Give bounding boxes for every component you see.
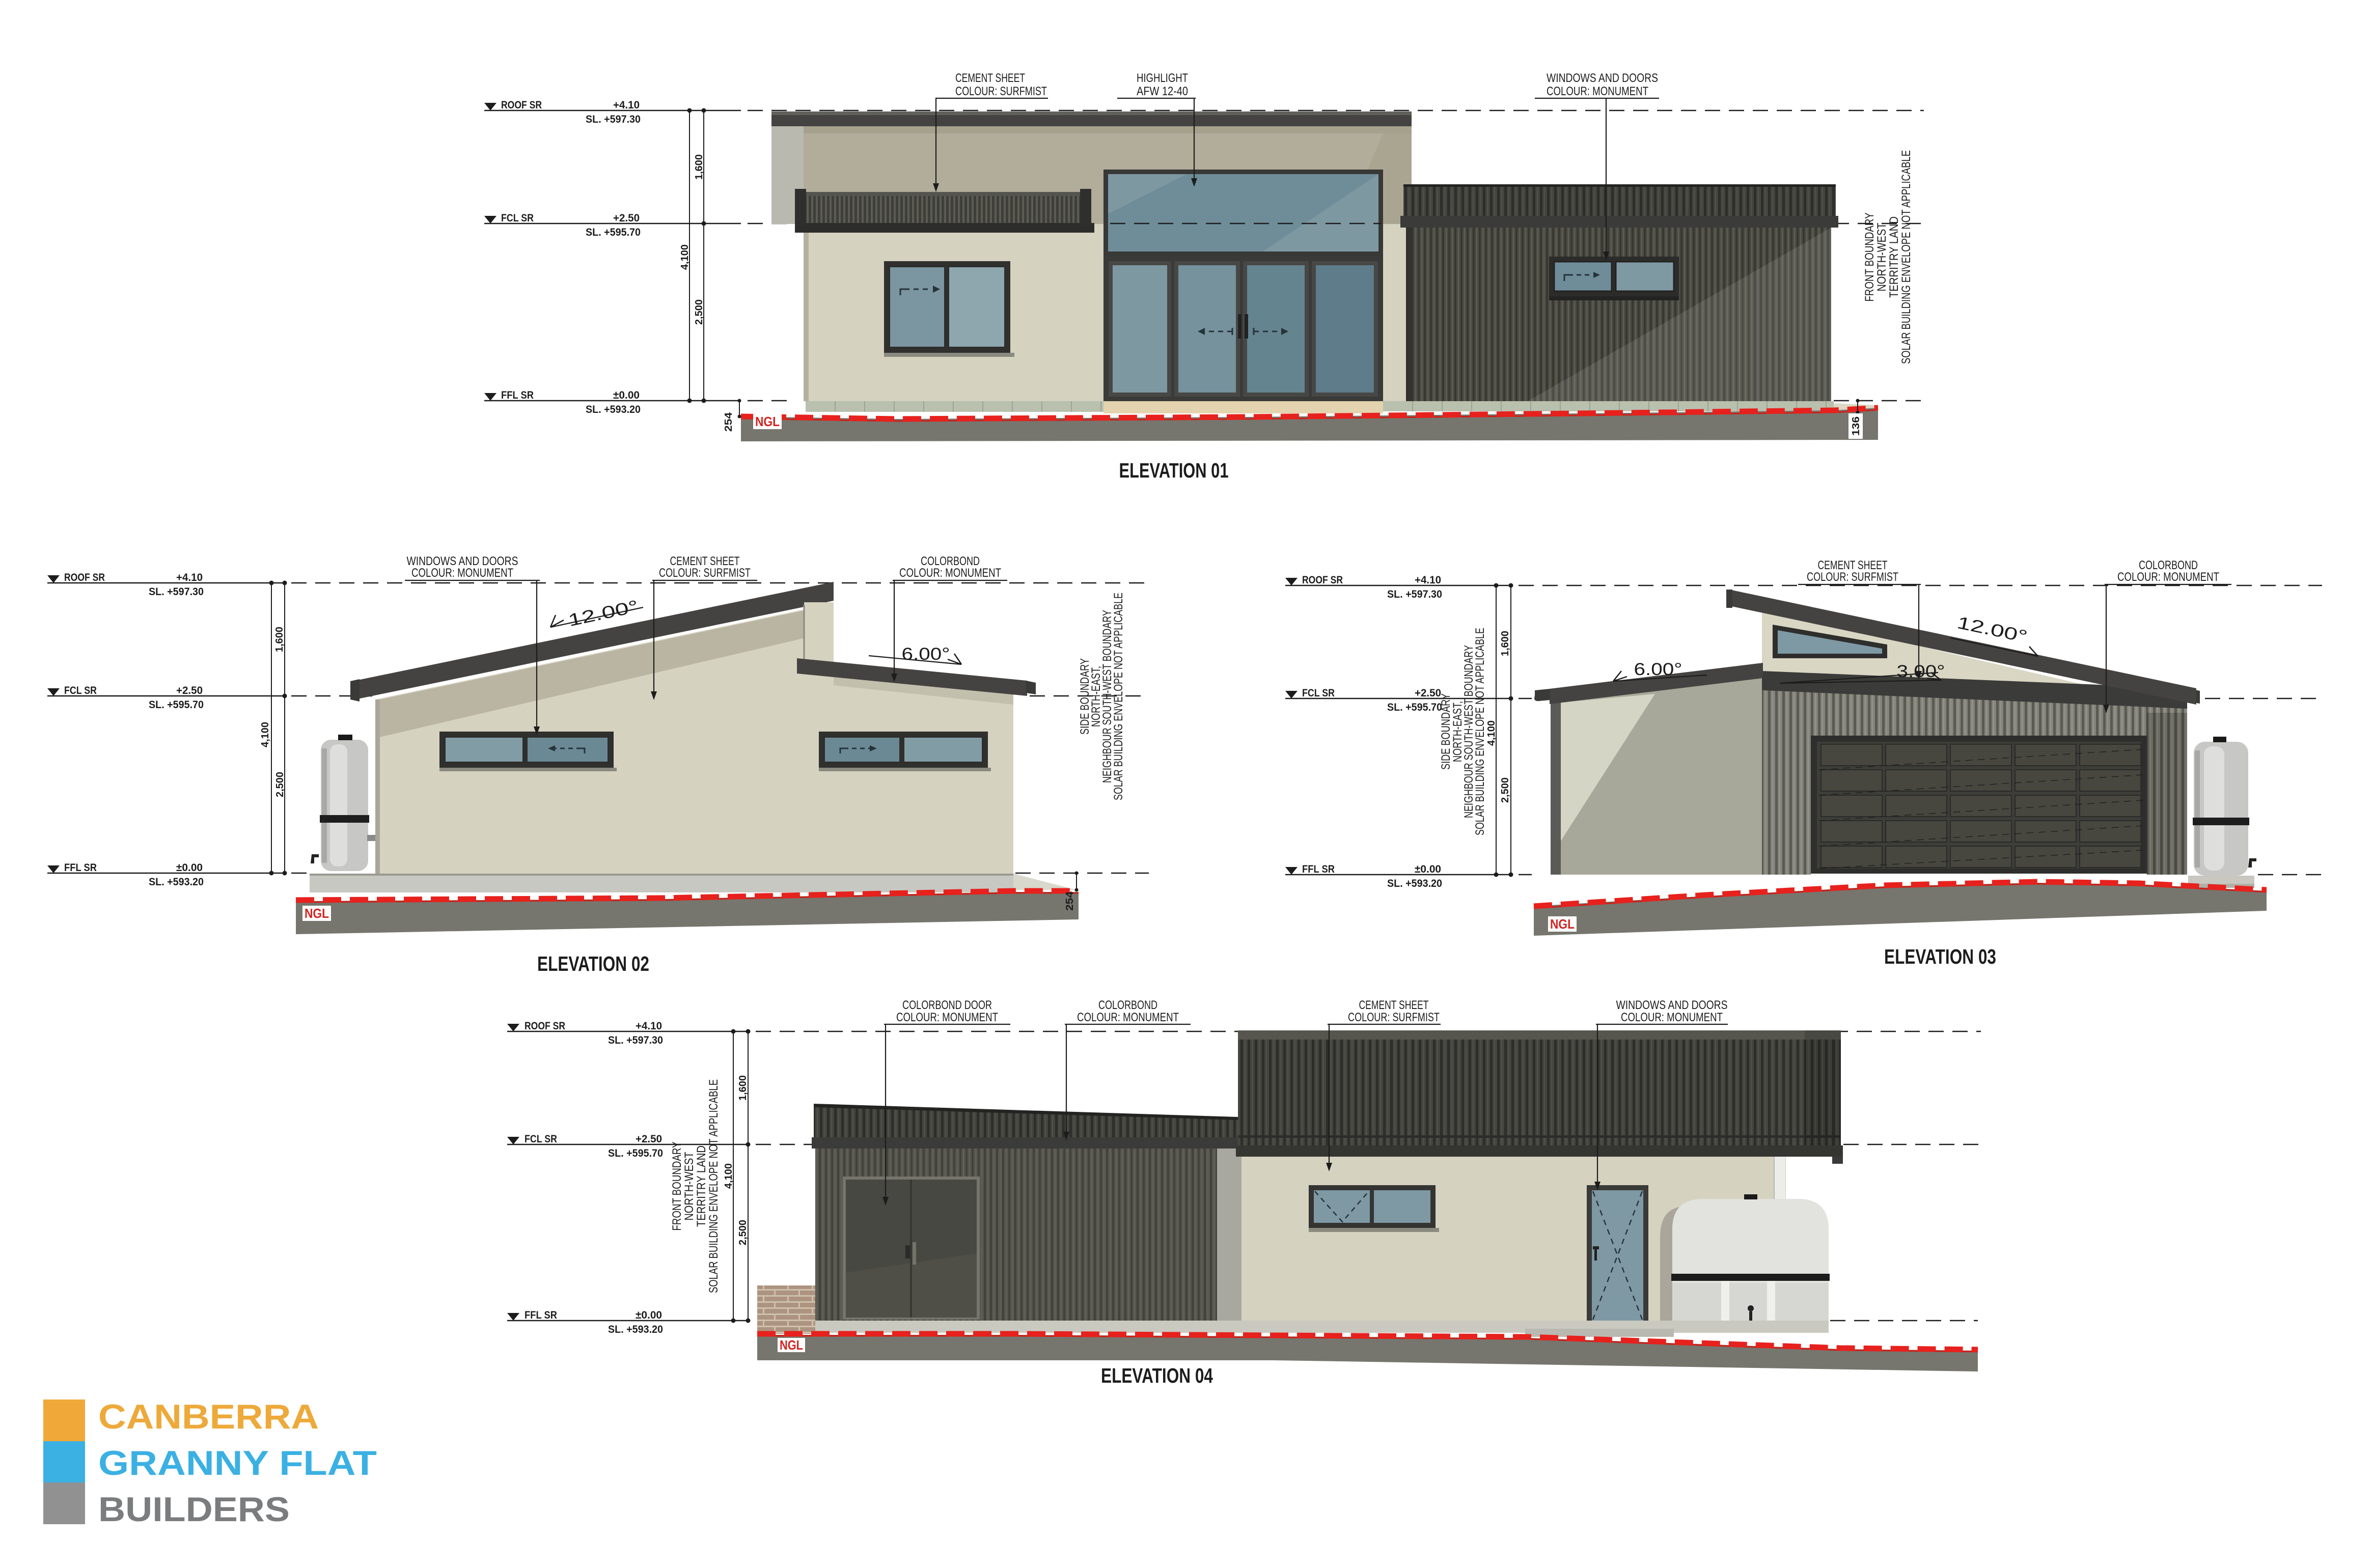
svg-text:WINDOWS AND DOORS: WINDOWS AND DOORS (1547, 71, 1658, 85)
svg-text:NGL: NGL (1550, 916, 1575, 932)
svg-text:SOLAR BUILDING ENVELOPE NOT AP: SOLAR BUILDING ENVELOPE NOT APPLICABLE (707, 1079, 721, 1293)
svg-text:FFL SR: FFL SR (525, 1309, 557, 1321)
svg-text:ELEVATION 02: ELEVATION 02 (537, 952, 649, 975)
svg-text:+2.50: +2.50 (176, 685, 203, 696)
svg-text:COLOUR: SURFMIST: COLOUR: SURFMIST (955, 85, 1047, 98)
svg-text:±0.00: ±0.00 (176, 862, 203, 874)
svg-text:COLOUR: MONUMENT: COLOUR: MONUMENT (899, 566, 1001, 580)
svg-text:GRANNY FLAT: GRANNY FLAT (98, 1444, 377, 1482)
svg-text:SL. +593.20: SL. +593.20 (1387, 878, 1442, 889)
svg-text:+2.50: +2.50 (636, 1133, 662, 1145)
svg-text:COLORBOND: COLORBOND (1098, 998, 1157, 1012)
svg-text:254: 254 (723, 412, 734, 432)
svg-text:1,600: 1,600 (694, 154, 705, 180)
svg-text:±0.00: ±0.00 (1415, 863, 1441, 875)
svg-text:SL. +597.30: SL. +597.30 (149, 586, 204, 598)
svg-text:COLOUR: MONUMENT: COLOUR: MONUMENT (2117, 570, 2219, 584)
svg-text:SOLAR BUILDING ENVELOPE NOT AP: SOLAR BUILDING ENVELOPE NOT APPLICABLE (1899, 150, 1913, 364)
svg-text:ELEVATION 04: ELEVATION 04 (1101, 1364, 1213, 1387)
svg-text:NORTH-WEST: NORTH-WEST (1875, 222, 1889, 291)
svg-text:NGL: NGL (780, 1337, 803, 1353)
svg-text:CEMENT SHEET: CEMENT SHEET (1359, 998, 1429, 1012)
svg-text:4,100: 4,100 (260, 722, 271, 747)
svg-text:SL. +595.70: SL. +595.70 (1387, 702, 1442, 713)
svg-text:ROOF SR: ROOF SR (1302, 574, 1343, 586)
svg-text:COLOUR: SURFMIST: COLOUR: SURFMIST (659, 566, 751, 580)
svg-text:FCL SR: FCL SR (525, 1133, 557, 1145)
svg-text:6.00°: 6.00° (1634, 660, 1682, 679)
svg-text:ROOF SR: ROOF SR (525, 1020, 565, 1032)
svg-text:SL. +593.20: SL. +593.20 (586, 404, 641, 415)
svg-text:+4.10: +4.10 (636, 1020, 662, 1032)
svg-text:COLORBOND DOOR: COLORBOND DOOR (902, 998, 992, 1012)
svg-text:FRONT BOUNDARY: FRONT BOUNDARY (670, 1142, 684, 1231)
svg-text:COLOUR: MONUMENT: COLOUR: MONUMENT (1077, 1011, 1179, 1024)
svg-text:ELEVATION 03: ELEVATION 03 (1884, 945, 1996, 968)
svg-text:2,500: 2,500 (1500, 777, 1511, 803)
svg-text:FCL SR: FCL SR (501, 212, 534, 224)
svg-text:ELEVATION 01: ELEVATION 01 (1119, 459, 1229, 482)
svg-text:SL. +597.30: SL. +597.30 (586, 114, 641, 125)
svg-text:SL. +593.20: SL. +593.20 (608, 1324, 663, 1335)
svg-text:SL. +595.70: SL. +595.70 (586, 227, 641, 238)
svg-text:SL. +595.70: SL. +595.70 (149, 699, 204, 711)
svg-text:±0.00: ±0.00 (613, 389, 640, 401)
svg-text:COLOUR: MONUMENT: COLOUR: MONUMENT (411, 566, 513, 580)
svg-text:FFL SR: FFL SR (1302, 863, 1335, 875)
svg-text:2,500: 2,500 (737, 1220, 749, 1245)
svg-text:4,100: 4,100 (1486, 720, 1497, 746)
svg-text:TERRITRY LAND: TERRITRY LAND (695, 1145, 708, 1227)
svg-text:COLOUR: SURFMIST: COLOUR: SURFMIST (1807, 570, 1898, 584)
svg-text:NGL: NGL (305, 906, 329, 921)
svg-text:SL. +597.30: SL. +597.30 (1387, 589, 1442, 600)
svg-text:ROOF SR: ROOF SR (501, 99, 542, 111)
svg-text:+4.10: +4.10 (1415, 574, 1441, 586)
svg-text:136: 136 (1851, 416, 1862, 436)
svg-text:FRONT BOUNDARY: FRONT BOUNDARY (1863, 213, 1877, 302)
svg-text:SL. +597.30: SL. +597.30 (608, 1034, 663, 1046)
svg-text:2,500: 2,500 (694, 299, 705, 325)
svg-text:WINDOWS AND DOORS: WINDOWS AND DOORS (1616, 998, 1728, 1012)
svg-text:NORTH-WEST: NORTH-WEST (682, 1152, 696, 1220)
svg-text:AFW 12-40: AFW 12-40 (1137, 85, 1188, 98)
svg-text:1,600: 1,600 (737, 1075, 749, 1101)
svg-text:COLOUR: MONUMENT: COLOUR: MONUMENT (1621, 1011, 1723, 1024)
svg-text:HIGHLIGHT: HIGHLIGHT (1137, 71, 1188, 85)
svg-text:+4.10: +4.10 (176, 572, 203, 583)
svg-text:SOLAR BUILDING ENVELOPE NOT AP: SOLAR BUILDING ENVELOPE NOT APPLICABLE (1473, 628, 1487, 835)
svg-text:SL. +595.70: SL. +595.70 (608, 1147, 663, 1159)
svg-text:+2.50: +2.50 (1415, 687, 1441, 699)
svg-text:2,500: 2,500 (274, 772, 286, 797)
svg-text:CEMENT SHEET: CEMENT SHEET (955, 71, 1025, 85)
svg-text:FCL SR: FCL SR (1302, 687, 1335, 699)
svg-text:4,100: 4,100 (723, 1163, 734, 1189)
svg-text:1,600: 1,600 (1500, 631, 1511, 656)
svg-text:ROOF SR: ROOF SR (64, 572, 105, 583)
svg-text:FFL SR: FFL SR (64, 862, 97, 874)
svg-text:1,600: 1,600 (274, 627, 285, 652)
svg-text:SOLAR BUILDING ENVELOPE NOT AP: SOLAR BUILDING ENVELOPE NOT APPLICABLE (1112, 593, 1125, 800)
svg-text:FCL SR: FCL SR (64, 685, 97, 696)
svg-text:COLOUR: MONUMENT: COLOUR: MONUMENT (1547, 85, 1648, 98)
svg-text:CANBERRA: CANBERRA (98, 1397, 319, 1436)
svg-text:SL. +593.20: SL. +593.20 (149, 876, 204, 888)
svg-text:254: 254 (1064, 891, 1075, 911)
svg-text:NGL: NGL (755, 414, 780, 429)
svg-text:+4.10: +4.10 (613, 99, 640, 111)
svg-text:TERRITRY LAND: TERRITRY LAND (1887, 216, 1901, 298)
svg-text:±0.00: ±0.00 (636, 1309, 662, 1321)
svg-text:+2.50: +2.50 (613, 212, 640, 224)
svg-text:4,100: 4,100 (679, 244, 691, 270)
svg-text:COLOUR: MONUMENT: COLOUR: MONUMENT (896, 1011, 998, 1024)
svg-text:COLOUR: SURFMIST: COLOUR: SURFMIST (1348, 1011, 1440, 1024)
svg-text:BUILDERS: BUILDERS (98, 1490, 290, 1529)
svg-text:FFL SR: FFL SR (501, 389, 534, 401)
